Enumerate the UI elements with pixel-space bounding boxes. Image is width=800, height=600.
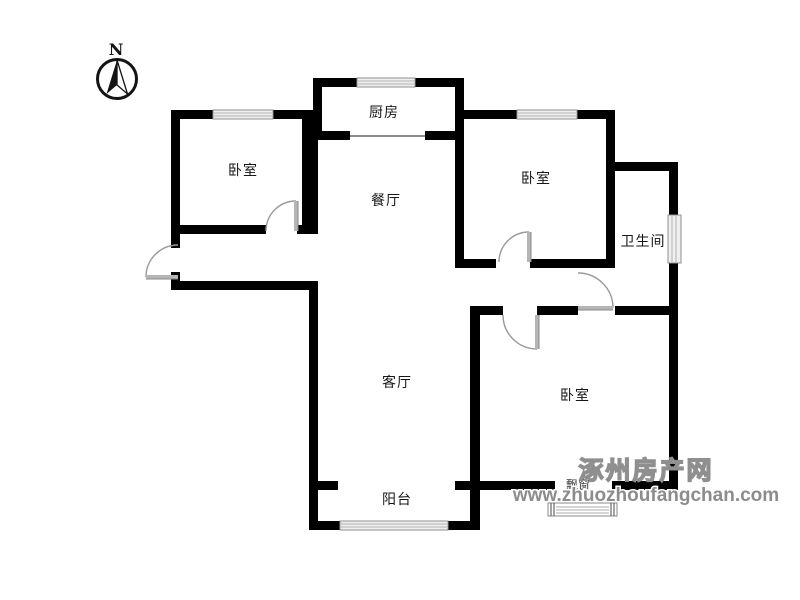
wall-segment [669,162,678,490]
wall-segment [448,521,478,530]
wall-segment [606,110,615,268]
wall-segment [537,306,578,315]
room-label-bedroom-top-left: 卧室 [228,162,258,178]
room-label-living: 客厅 [382,374,412,390]
wall-segment [309,521,340,530]
door-bedroom-bottom [503,315,539,349]
wall-segment [309,481,338,490]
wall-segment [313,78,322,140]
door-bedroom-top-right [499,232,531,262]
room-label-bathroom: 卫生间 [621,233,666,249]
window-bedroom-top-right [517,110,577,119]
room-label-dining: 餐厅 [371,192,401,208]
wall-segment [297,225,318,234]
room-label-bedroom-bottom: 卧室 [560,387,590,403]
watermark-site-name: 涿州房产网 [578,456,713,485]
wall-segment [171,225,266,234]
door-bedroom-top-left [266,201,298,231]
floorplan-svg: 厨房 卧室 餐厅 卧室 卫生间 客厅 卧室 阳台 飘窗 N 涿州房产网 www.… [0,0,800,600]
window-bathroom [668,215,681,263]
wall-segment [470,306,480,530]
compass-north-label: N [109,40,124,59]
watermark-site-url: www.zhuozhoufangchan.com [512,485,779,506]
wall-segment [313,131,350,140]
room-label-bedroom-top-right: 卧室 [521,170,551,186]
wall-segment [455,78,464,268]
window-kitchen [357,78,415,87]
wall-segment [606,162,678,171]
floorplan-canvas: 厨房 卧室 餐厅 卧室 卫生间 客厅 卧室 阳台 飘窗 N 涿州房产网 www.… [0,0,800,600]
wall-segment [455,259,496,268]
wall-segment [615,306,678,315]
door-bathroom [578,273,613,310]
window-bedroom-top-left [213,110,273,119]
room-labels: 厨房 卧室 餐厅 卧室 卫生间 客厅 卧室 阳台 飘窗 [228,104,666,507]
window-balcony [340,521,448,530]
room-label-balcony: 阳台 [382,491,412,507]
doors [146,201,613,349]
north-arrow-icon [107,60,118,94]
wall-segment [425,131,463,140]
wall-segment [171,281,318,290]
wall-segment [309,281,318,530]
north-arrow-icon-outline [117,60,128,94]
room-label-kitchen: 厨房 [369,104,399,120]
wall-segment [530,259,615,268]
north-compass: N [98,40,137,99]
